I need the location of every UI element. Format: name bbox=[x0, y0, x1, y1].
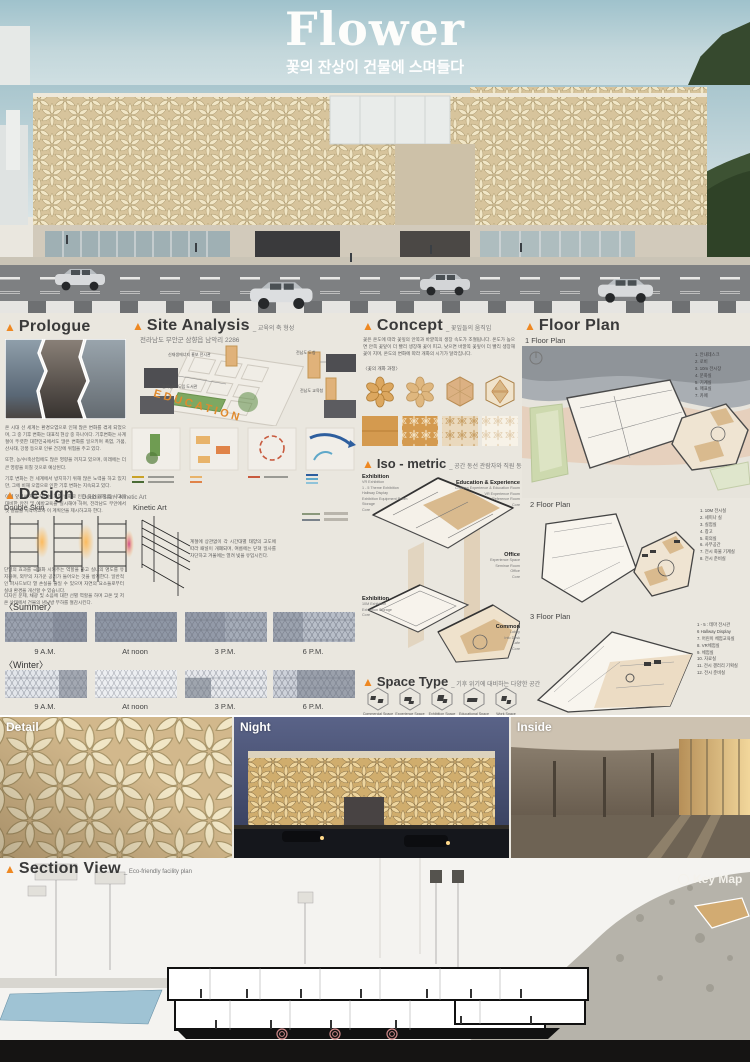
winter-strips bbox=[3, 668, 355, 700]
hero-rendering bbox=[0, 85, 750, 313]
site-label-library: 전라남도 도립 도서관 bbox=[162, 384, 197, 390]
section-marker-icon: ▲ bbox=[132, 320, 144, 332]
iso-group-exhibition-bottom: Exhibition 10M Exhibition Exhibition Sto… bbox=[362, 596, 422, 619]
page-subtitle: 꽃의 잔상이 건물에 스며들다 bbox=[0, 56, 750, 77]
isometric-heading: ▲ Iso - metric _ 공간 동선 관람자와 직원 동선 분리 bbox=[362, 456, 540, 471]
section-marker-icon: ▲ bbox=[524, 320, 536, 332]
inside-image bbox=[511, 717, 750, 858]
summer-time-label: 6 P.M. bbox=[283, 647, 343, 656]
poster-board: Flower 꽃의 잔상이 건물에 스며들다 bbox=[0, 0, 750, 1062]
concept-sub: _ 꽃잎들의 움직임 bbox=[446, 323, 491, 332]
site-axis-note: _ 교육의 축 형성 bbox=[253, 323, 294, 332]
site-address: 전라남도 무안군 삼향읍 남악리 2286 bbox=[140, 334, 239, 344]
kinetic-art-label: Kinetic Art bbox=[133, 503, 167, 512]
section-view-heading: ▲ Section View _ Eco-friendly facility p… bbox=[4, 860, 192, 878]
page-title: Flower bbox=[0, 2, 750, 56]
prologue-paragraph: 또한, 농/수/축산업에도 많은 영향을 끼치고 있으며, 미래에는 더 큰 영… bbox=[5, 456, 126, 470]
section-marker-icon: ▲ bbox=[4, 489, 16, 501]
concept-paragraph: 꽃은 온도에 따라 꽃잎의 안쪽과 바깥쪽의 생장 속도가 조절됩니다. 온도가… bbox=[363, 336, 515, 357]
section-view-sub: _ Eco-friendly facility plan bbox=[124, 869, 192, 875]
prologue-heading: ▲ Prologue bbox=[4, 318, 91, 336]
detail-label: Detail bbox=[6, 720, 39, 734]
floor-plan-2 bbox=[524, 510, 696, 608]
iso-group-education: Education & Experience Children Experien… bbox=[430, 480, 520, 508]
site-label-capitol: 전남도 도청 bbox=[296, 350, 316, 356]
iso-group-exhibition-top: Exhibition VR Exhibition 1 - 5 Theme Exh… bbox=[362, 474, 432, 513]
design-heading: ▲ Design _ Double Skin / Kinetic Art bbox=[4, 486, 146, 504]
summer-time-label: 9 A.M. bbox=[15, 647, 75, 656]
site-label-edu-office: 전남도 교육청 bbox=[300, 388, 323, 394]
plan1-label: 1 Floor Plan bbox=[525, 336, 565, 345]
compass-icon bbox=[678, 874, 689, 885]
floor-plan-heading: ▲ Floor Plan bbox=[524, 317, 620, 335]
section-view-drawing bbox=[0, 858, 750, 1040]
design-sub: _ Double Skin / Kinetic Art bbox=[77, 495, 146, 501]
section-marker-icon: ▲ bbox=[4, 863, 16, 875]
winter-time-label: At noon bbox=[105, 702, 165, 711]
plan3-label: 3 Floor Plan bbox=[530, 612, 570, 621]
plan3-legend: 1 - 5 : 테마 전시관 6 Hallway Display 7. 어린이 … bbox=[697, 622, 750, 677]
plan2-legend: 1. 10M 전시실 2. 세미나 실 3. 실험실 4. 창고 5. 회의실 … bbox=[700, 508, 750, 563]
summer-time-label: At noon bbox=[105, 647, 165, 656]
concept-diagram bbox=[360, 372, 520, 450]
design-paragraph-1: 단열의 효과를 극대화 시켜주는 역할을 하고 실내의 명도를 유지하며, 외부… bbox=[4, 566, 124, 594]
detail-image bbox=[0, 717, 232, 858]
site-analysis-heading: ▲ Site Analysis _ 교육의 축 형성 bbox=[132, 317, 294, 335]
winter-time-label: 6 P.M. bbox=[283, 702, 343, 711]
double-skin-label: Double Skin bbox=[4, 503, 44, 512]
summer-time-label: 3 P.M. bbox=[195, 647, 255, 656]
plan2-label: 2 Floor Plan bbox=[530, 500, 570, 509]
section-marker-icon: ▲ bbox=[4, 321, 16, 333]
prologue-photo-collage bbox=[5, 339, 126, 419]
inside-label: Inside bbox=[517, 720, 552, 734]
iso-group-common: Common Lobby Info Desk Cafe Core bbox=[470, 624, 520, 652]
site-mini-maps bbox=[130, 426, 358, 490]
floor-plan-3 bbox=[524, 622, 696, 714]
footer-bar bbox=[0, 1040, 750, 1062]
key-map-label: Key Map bbox=[678, 872, 742, 886]
site-label-energy: 신재생에너지 홍보 전시관 bbox=[168, 352, 211, 358]
winter-time-label: 3 P.M. bbox=[195, 702, 255, 711]
section-marker-icon: ▲ bbox=[362, 458, 374, 470]
concept-heading: ▲ Concept _ 꽃잎들의 움직임 bbox=[362, 317, 491, 335]
iso-group-office: Office Experience Space Seminar Room Off… bbox=[462, 552, 520, 580]
section-marker-icon: ▲ bbox=[362, 320, 374, 332]
design-paragraph-mid: 계절에 상관없이 각 시간대별 태양의 고도에 따라 패널이 개폐되며, 여름에… bbox=[190, 538, 276, 559]
space-type-icons bbox=[362, 687, 520, 711]
plan1-legend: 1. 안내데스크 2. 로비 3. 10m 전시장 4. 문화실 5. 기계실 … bbox=[695, 352, 747, 400]
night-image bbox=[234, 717, 509, 858]
night-label: Night bbox=[240, 720, 271, 734]
summer-strips bbox=[3, 610, 355, 644]
winter-time-label: 9 A.M. bbox=[15, 702, 75, 711]
prologue-paragraph: 온 시대 선 세계는 환경오염으로 인해 많은 변화를 겪게 되었으며, 그 중… bbox=[5, 424, 126, 452]
